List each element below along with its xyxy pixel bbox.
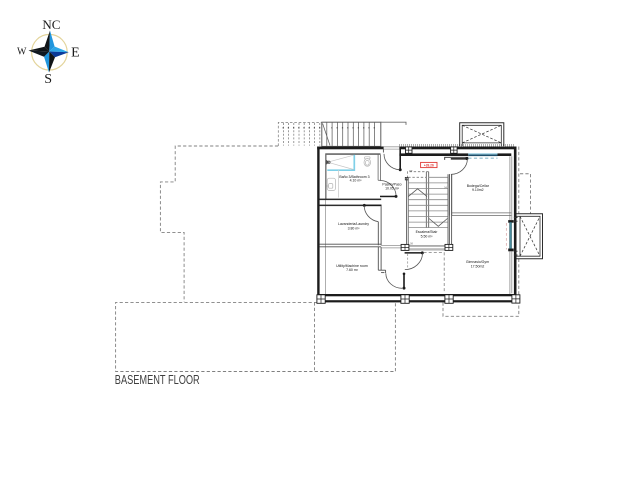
svg-text:7.60 m²: 7.60 m² [346, 268, 359, 272]
svg-text:Utility/Machine room: Utility/Machine room [336, 264, 368, 268]
svg-text:08: 08 [410, 242, 413, 246]
svg-text:NC: NC [42, 17, 60, 32]
svg-text:+39.26: +39.26 [424, 163, 434, 167]
svg-text:4.10 m²: 4.10 m² [350, 178, 363, 182]
svg-text:3.80 m²: 3.80 m² [348, 226, 361, 230]
svg-text:9.10m2: 9.10m2 [472, 188, 484, 192]
svg-text:W: W [17, 46, 27, 57]
svg-text:S: S [44, 72, 52, 87]
svg-text:17.50m2: 17.50m2 [471, 264, 485, 268]
svg-text:up: up [409, 169, 413, 173]
svg-text:BASEMENT FLOOR: BASEMENT FLOOR [115, 374, 200, 388]
svg-text:E: E [71, 46, 80, 61]
svg-text:Lavanderia/Laundry: Lavanderia/Laundry [338, 222, 369, 226]
svg-text:10.05 m²: 10.05 m² [385, 187, 400, 191]
svg-text:5.50 m²: 5.50 m² [421, 234, 434, 238]
